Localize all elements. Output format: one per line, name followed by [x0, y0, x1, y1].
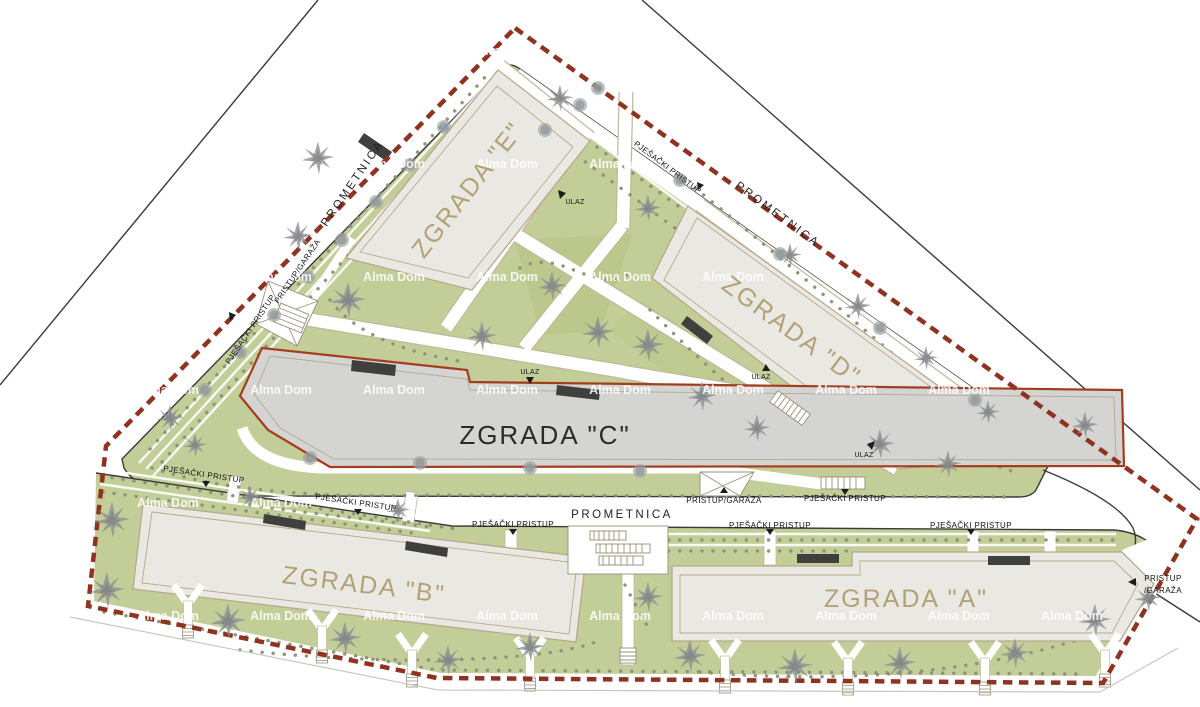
- pedestrian-access-label-5: PJEŠAČKI PRISTUP: [472, 520, 554, 529]
- watermark-text: Alma Dom: [363, 270, 425, 284]
- pedestrian-access-label-6: PJEŠAČKI PRISTUP: [729, 521, 811, 530]
- watermark-text: Alma Dom: [476, 609, 538, 623]
- round-tree-icon: [573, 98, 587, 112]
- watermark-text: Alma Dom: [250, 609, 312, 623]
- entry-path: [764, 531, 776, 565]
- entrance-label-4: ULAZ: [854, 452, 874, 459]
- watermark-text: Alma Dom: [250, 383, 312, 397]
- watermark-text: Alma Dom: [137, 496, 199, 510]
- watermark-text: Alma Dom: [476, 270, 538, 284]
- round-tree-icon: [303, 451, 317, 465]
- watermark-text: Alma Dom: [589, 270, 651, 284]
- building-a-canopy-2: [988, 556, 1030, 565]
- watermark-text: Alma Dom: [363, 383, 425, 397]
- watermark-text: Alma Dom: [250, 270, 312, 284]
- watermark-text: Alma Dom: [476, 44, 538, 58]
- round-tree-icon: [198, 383, 212, 397]
- round-tree-icon: [369, 195, 383, 209]
- building-a-label: ZGRADA "A": [824, 585, 988, 613]
- watermark-text: Alma Dom: [589, 157, 651, 171]
- round-tree-icon: [335, 233, 349, 247]
- road-label-center: PROMETNICA: [571, 509, 673, 521]
- site-plan-page: Alma DomAlma DomAlma DomAlma DomAlma Dom…: [0, 0, 1200, 707]
- pedestrian-access-label-7: PJEŠAČKI PRISTUP: [930, 521, 1012, 530]
- site-plan: Alma DomAlma DomAlma DomAlma DomAlma Dom…: [0, 0, 1200, 707]
- round-tree-icon: [413, 456, 427, 470]
- building-c-label: ZGRADA "C": [459, 420, 630, 450]
- watermark-text: Alma Dom: [137, 609, 199, 623]
- watermark-text: Alma Dom: [250, 496, 312, 510]
- round-tree-icon: [591, 81, 605, 95]
- watermark-text: Alma Dom: [589, 609, 651, 623]
- round-tree-icon: [873, 321, 887, 335]
- round-tree-icon: [633, 464, 647, 478]
- watermark-text: Alma Dom: [137, 383, 199, 397]
- watermark-text: Alma Dom: [476, 383, 538, 397]
- garage-access-label-center: PRISTUP/GARAŽA: [686, 496, 762, 505]
- garage-access-label-east-line2: /GARAŽA: [1144, 586, 1182, 595]
- round-tree-icon: [538, 123, 552, 137]
- watermark-text: Alma Dom: [702, 383, 764, 397]
- round-tree-icon: [267, 308, 281, 322]
- watermark-text: Alma Dom: [928, 383, 990, 397]
- round-tree-icon: [523, 461, 537, 475]
- stairs-d-south: [821, 477, 865, 489]
- watermark-text: Alma Dom: [1041, 609, 1103, 623]
- round-tree-icon: [773, 247, 787, 261]
- garage-access-label-east-line1: PRISTUP: [1144, 574, 1181, 583]
- palm-tree-icon: [302, 142, 335, 175]
- watermark-text: Alma Dom: [589, 383, 651, 397]
- pedestrian-access-label-8: PJEŠAČKI PRISTUP: [804, 494, 886, 503]
- entrance-label-2: ULAZ: [520, 369, 540, 376]
- entrance-label-3: ULAZ: [751, 374, 771, 381]
- building-a-canopy-1: [797, 554, 839, 563]
- watermark-text: Alma Dom: [702, 609, 764, 623]
- round-tree-icon: [437, 120, 451, 134]
- entrance-label-1: ULAZ: [565, 199, 585, 206]
- watermark-text: Alma Dom: [363, 609, 425, 623]
